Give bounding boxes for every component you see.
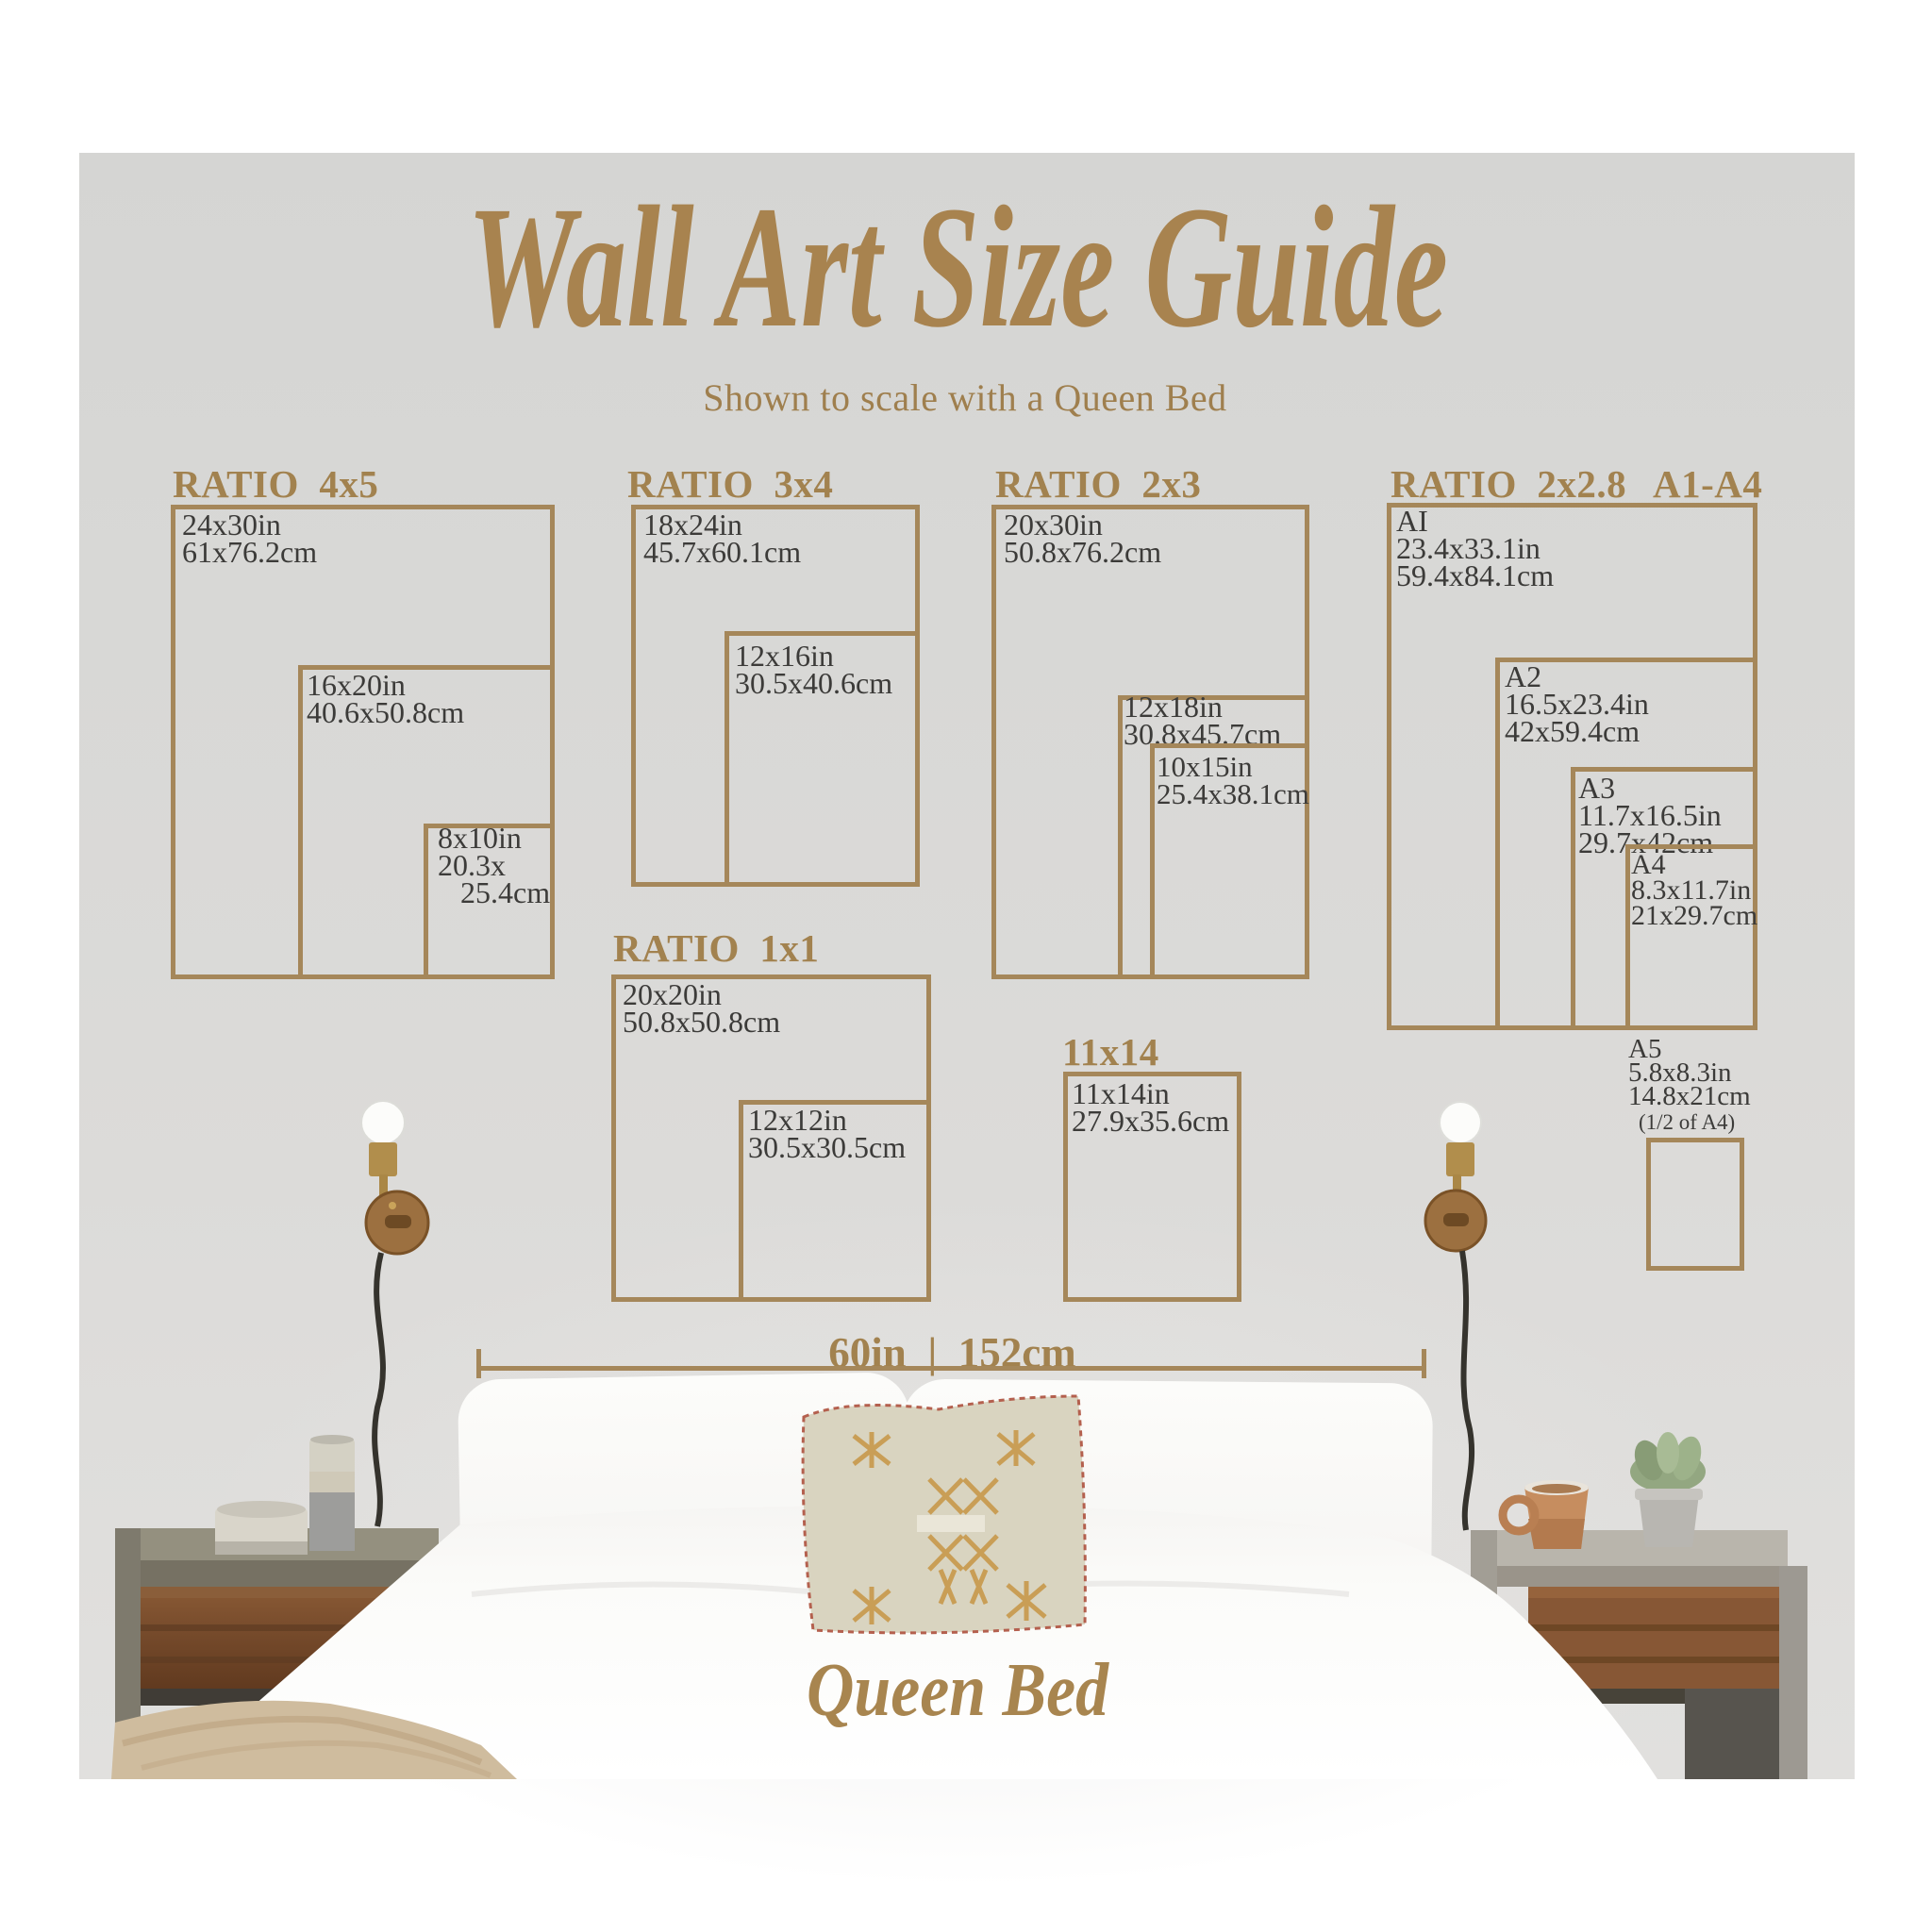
svg-text:Queen Bed: Queen Bed (807, 1649, 1109, 1732)
svg-text:Wall Art Size Guide: Wall Art Size Guide (467, 171, 1448, 364)
